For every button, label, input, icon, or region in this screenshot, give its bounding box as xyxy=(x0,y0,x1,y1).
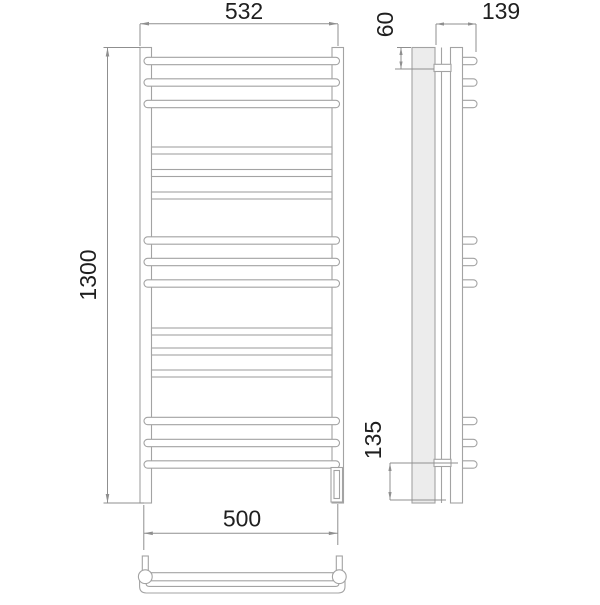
heating-element-outer xyxy=(331,468,343,503)
front-round-bar xyxy=(144,258,340,265)
dim-arrow-right xyxy=(329,22,338,26)
dim-arrow-bottom xyxy=(388,492,391,500)
dim-bottom-width-label: 500 xyxy=(223,506,261,532)
dim-arrow-left xyxy=(140,22,149,26)
front-flat-bar xyxy=(152,147,333,154)
dim-arrow-left xyxy=(144,532,153,536)
plan-flat-rail xyxy=(152,573,334,581)
dim-overall-height-label: 1300 xyxy=(75,249,101,300)
front-flat-bar xyxy=(152,328,333,335)
dim-bottom-width: 500 xyxy=(144,504,338,550)
heating-element-box xyxy=(331,468,343,503)
dim-top-width-label: 532 xyxy=(225,0,263,24)
front-round-bar xyxy=(144,237,340,244)
front-round-bar xyxy=(144,280,340,287)
dim-overall-height: 1300 xyxy=(75,48,144,504)
front-round-bar xyxy=(144,417,340,424)
front-round-bar xyxy=(144,100,340,107)
plan-bracket-right xyxy=(336,556,342,571)
front-round-bar xyxy=(144,57,340,64)
technical-drawing-page: 532 1300 500 139 60 xyxy=(0,0,600,600)
dim-arrow-right xyxy=(329,532,338,536)
front-left-collector-tube xyxy=(140,48,152,504)
front-round-bar xyxy=(144,439,340,446)
dim-arrow-top xyxy=(388,463,391,471)
towel-rail-drawing: 532 1300 500 139 60 xyxy=(0,0,600,600)
dim-arrow-bottom xyxy=(399,62,402,70)
top-view xyxy=(138,556,346,593)
plan-collector-left-circle xyxy=(138,570,152,584)
dim-arrow-top xyxy=(399,48,402,56)
wall-profile xyxy=(412,48,435,504)
dim-top-bracket-offset-label: 60 xyxy=(372,12,398,38)
dim-arrow-left xyxy=(436,22,444,25)
front-flat-bar xyxy=(152,348,333,355)
side-collector-tube xyxy=(451,48,463,504)
side-view xyxy=(412,48,477,504)
dim-bottom-bracket-offset-label: 135 xyxy=(360,421,386,459)
dim-arrow-bottom xyxy=(106,494,110,503)
front-flat-bar xyxy=(152,192,333,199)
dim-top-width: 532 xyxy=(140,0,338,46)
front-view xyxy=(140,48,344,504)
front-round-bar xyxy=(144,79,340,86)
front-flat-bar xyxy=(152,370,333,377)
front-round-bar xyxy=(144,461,340,468)
dim-arrow-top xyxy=(106,48,110,57)
dim-arrow-right xyxy=(468,22,476,25)
front-round-bars xyxy=(144,57,340,468)
plan-collector-right-circle xyxy=(332,570,346,584)
dim-depth: 139 xyxy=(436,0,520,52)
dim-depth-label: 139 xyxy=(482,0,520,24)
plan-bracket-left xyxy=(142,556,148,571)
mounting-bracket-top xyxy=(434,64,451,71)
front-flat-bar xyxy=(152,170,333,177)
front-right-collector-tube xyxy=(332,48,344,504)
